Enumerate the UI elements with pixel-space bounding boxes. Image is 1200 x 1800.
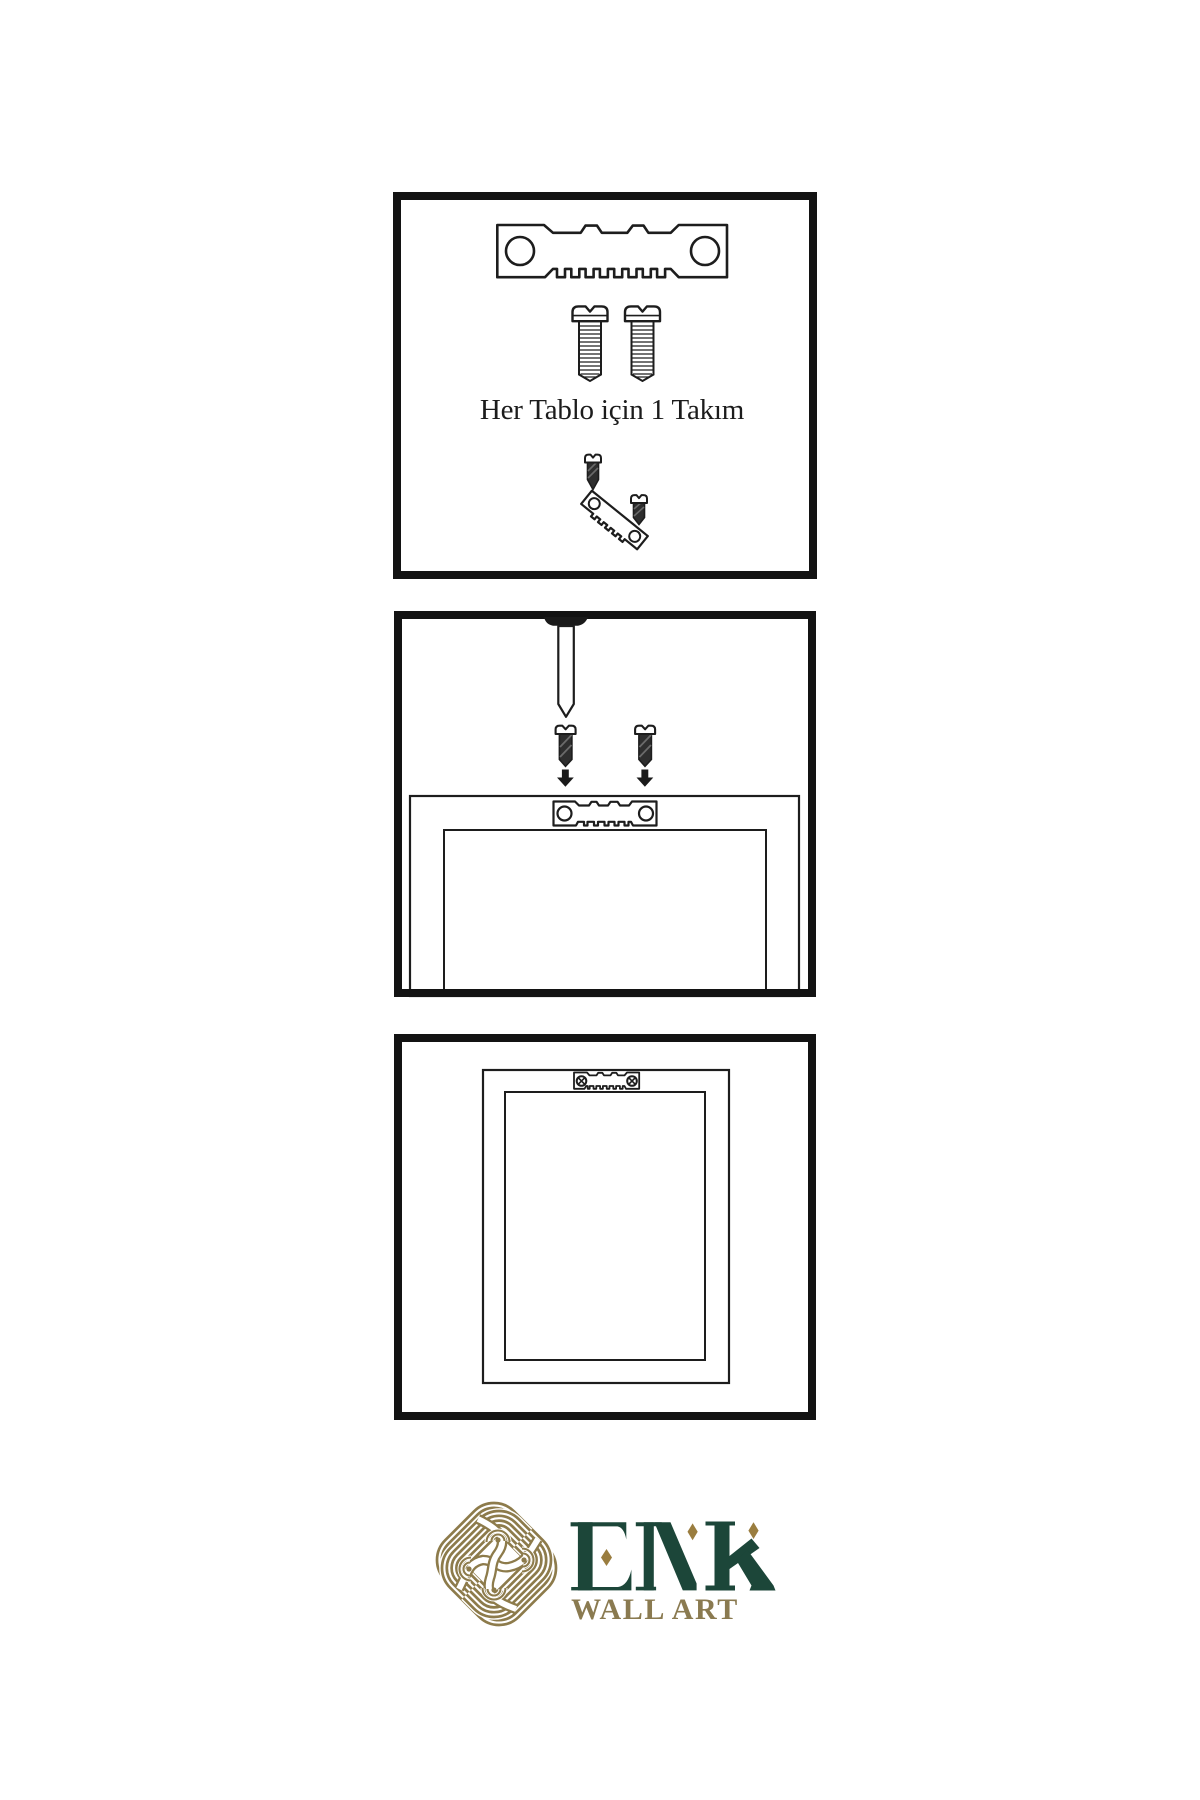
svg-text:Her Tablo için 1 Takım: Her Tablo için 1 Takım <box>480 394 745 426</box>
svg-text:WALL ART: WALL ART <box>571 1593 739 1626</box>
